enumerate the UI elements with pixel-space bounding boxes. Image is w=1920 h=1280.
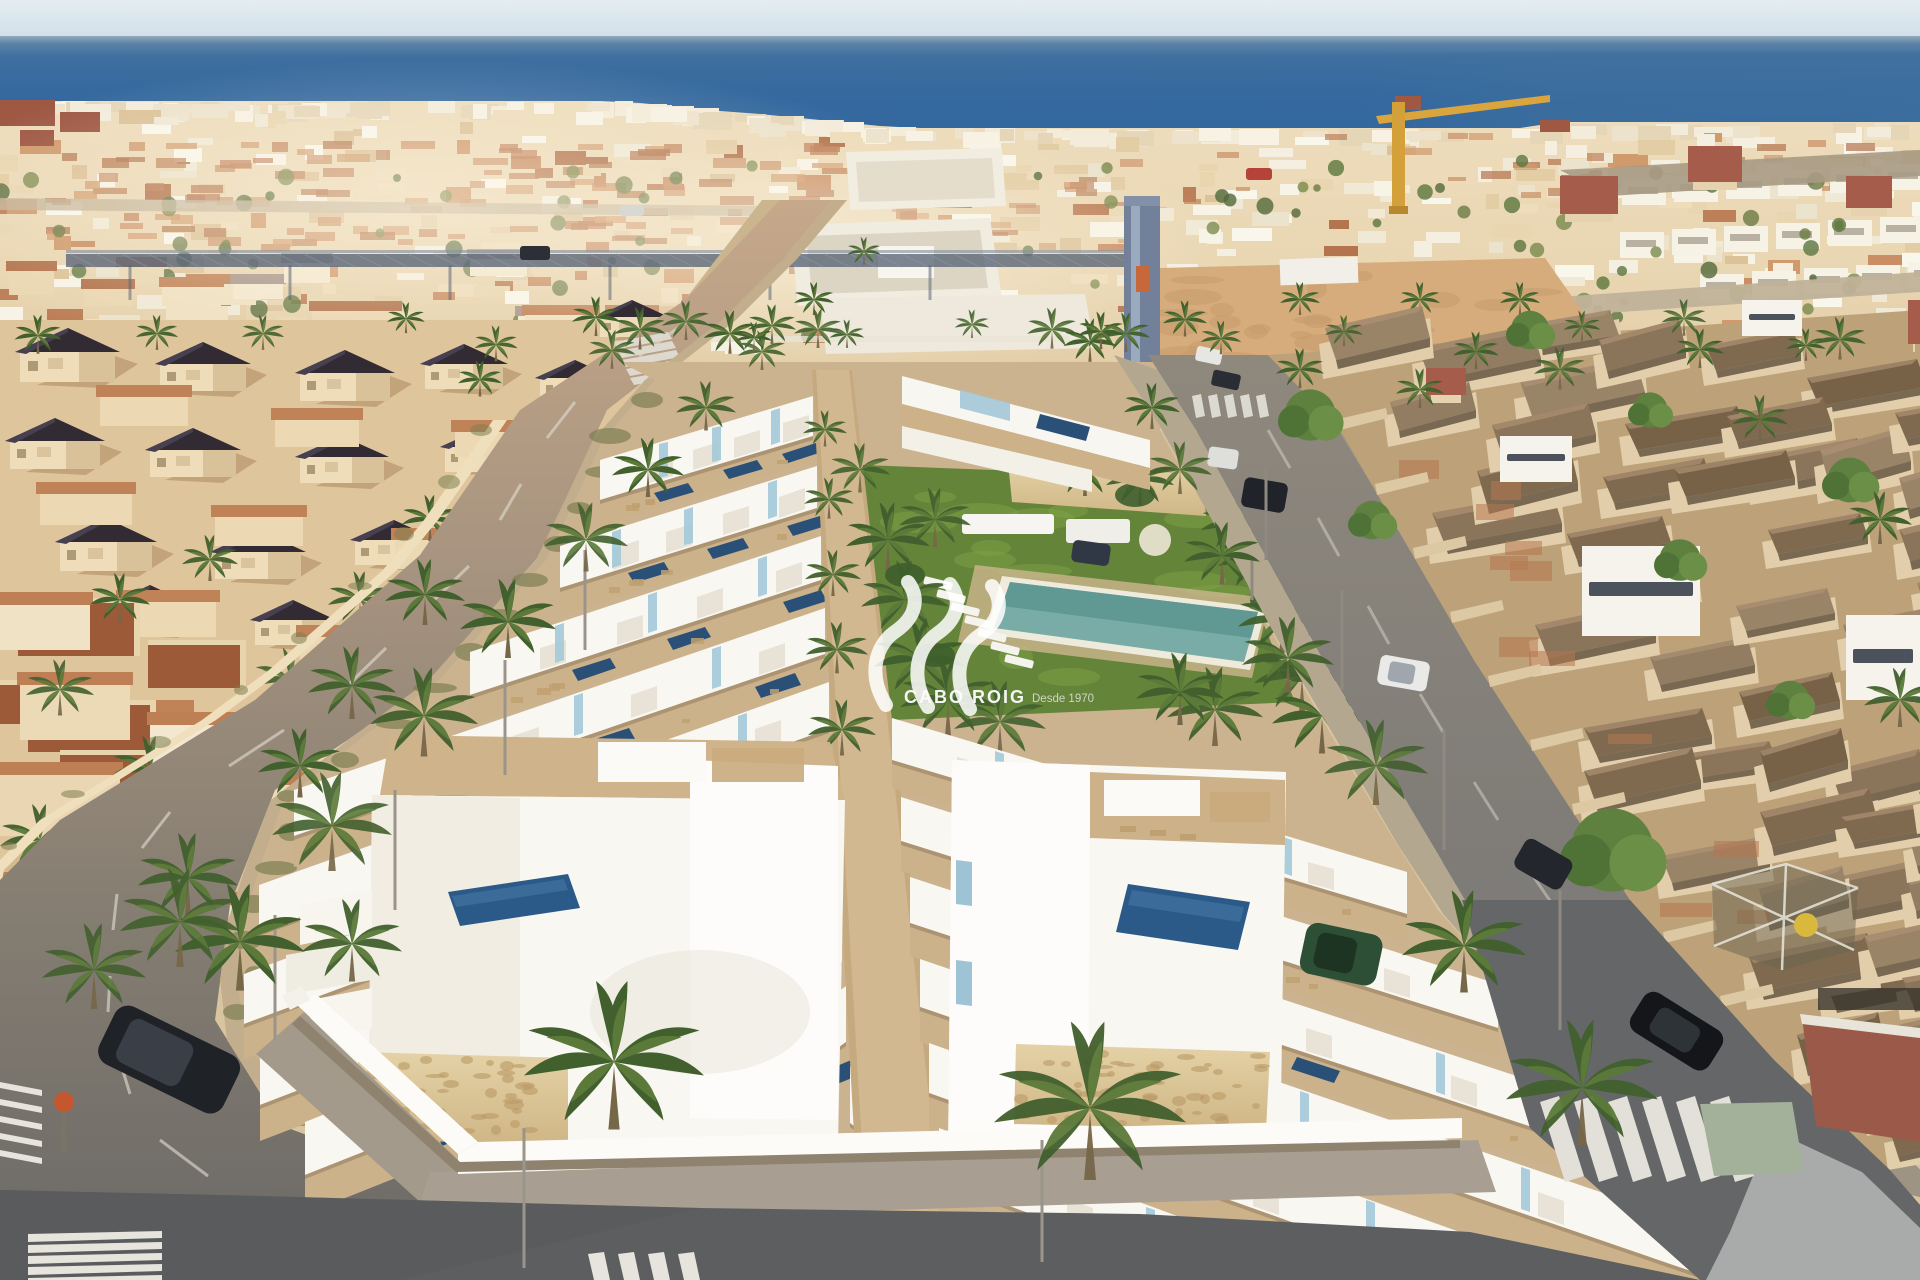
svg-text:CABO ROIG: CABO ROIG — [904, 687, 1026, 707]
svg-text:Desde 1970: Desde 1970 — [1032, 693, 1094, 705]
